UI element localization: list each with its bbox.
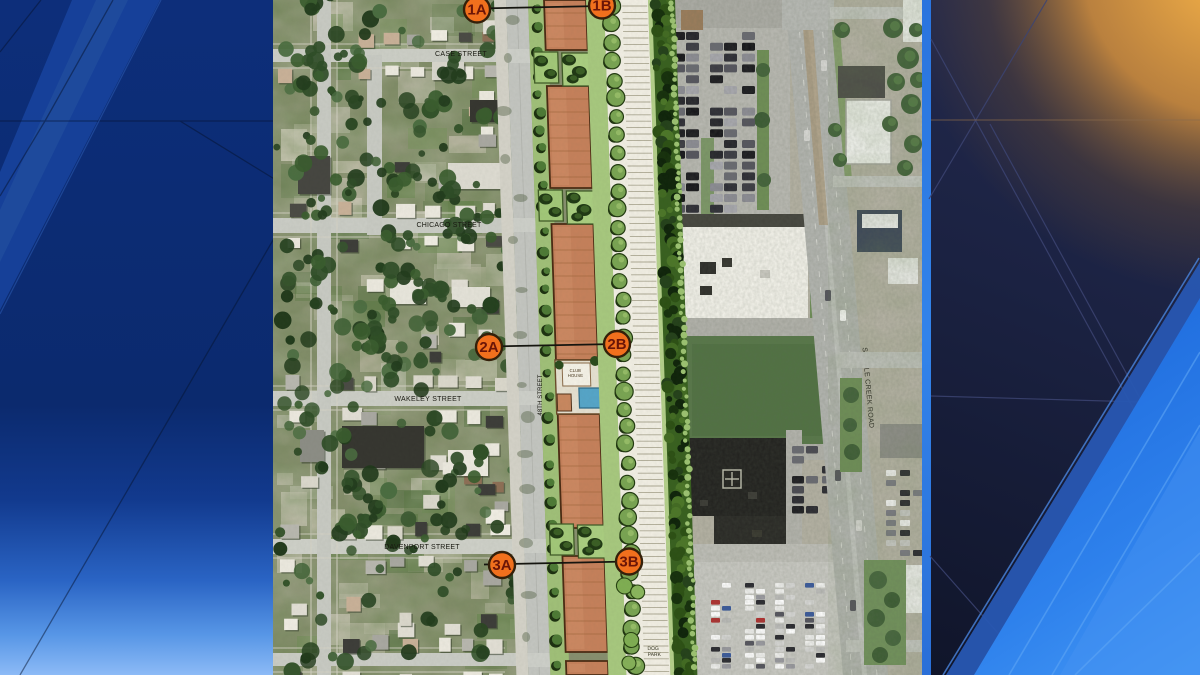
svg-text:2B: 2B xyxy=(607,336,626,353)
svg-text:3B: 3B xyxy=(619,554,638,571)
svg-text:3A: 3A xyxy=(492,557,511,574)
svg-text:1B: 1B xyxy=(592,0,611,15)
svg-text:1A: 1A xyxy=(467,2,486,19)
svg-text:2A: 2A xyxy=(479,339,498,356)
